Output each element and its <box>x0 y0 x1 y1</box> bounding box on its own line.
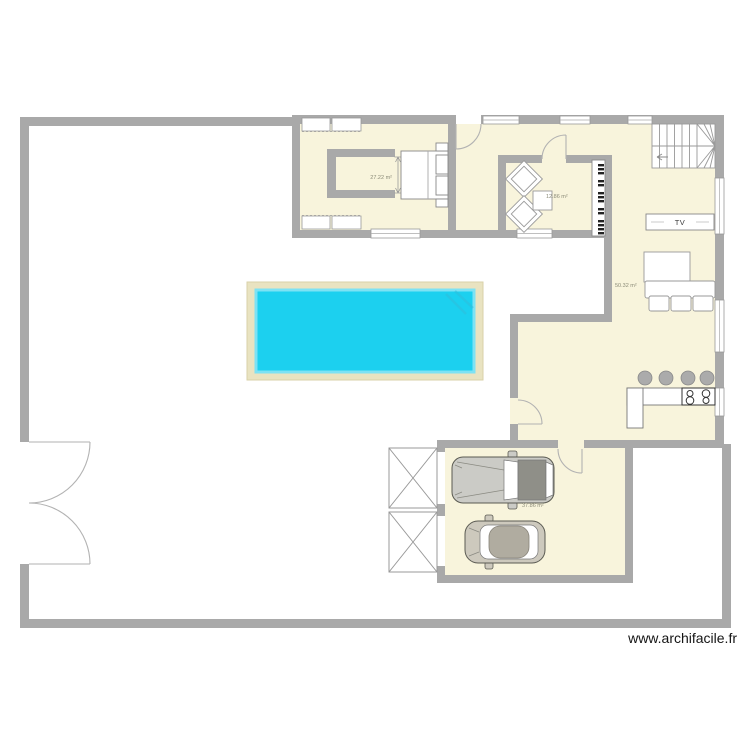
floor-kitchen-extension[interactable] <box>514 318 612 444</box>
window <box>302 216 330 229</box>
wall-garage-left-stub-top <box>437 440 445 452</box>
garage-door-panel <box>389 512 437 572</box>
window <box>302 118 330 131</box>
wall-kitchen-ext-top <box>510 314 612 322</box>
wall-bedroom-right <box>448 115 456 238</box>
wall-north-bottom <box>292 230 612 238</box>
car-rear-window <box>546 462 553 498</box>
tv-label: TV <box>675 218 686 227</box>
wall-salon-top-a <box>498 155 542 163</box>
wall-salon-left <box>498 155 506 238</box>
wall-bedroom-left <box>292 115 300 238</box>
area-label-living: 50.32 m² <box>615 283 637 289</box>
area-label-salon: 12.86 m² <box>546 194 568 200</box>
wall-garage-right <box>625 440 633 583</box>
burner <box>702 390 710 398</box>
bar-stool <box>700 371 714 385</box>
window <box>332 216 361 229</box>
garage-door-panel <box>389 448 437 508</box>
wall-kitchen-ext-left-a <box>510 314 518 398</box>
burner <box>687 391 693 397</box>
floor-plan: TV <box>0 0 750 750</box>
stove[interactable] <box>682 388 715 405</box>
area-label-garage: 37.86 m² <box>522 503 544 509</box>
wall-kitchen-bottom-a <box>510 440 558 448</box>
nightstand <box>436 143 448 151</box>
pillow <box>436 155 448 174</box>
car[interactable] <box>465 515 545 569</box>
sofa-cushion <box>671 296 691 311</box>
car-roof <box>518 460 546 500</box>
area-label-bedroom: 27.22 m² <box>370 175 392 181</box>
wall-kitchen-bottom-b <box>584 440 724 448</box>
car-windshield <box>504 460 518 500</box>
dining-table[interactable] <box>644 252 690 282</box>
floor-plan-canvas: TV <box>0 0 750 750</box>
staircase[interactable] <box>652 124 715 168</box>
wall-property-top <box>20 117 292 126</box>
burner <box>703 398 709 404</box>
sofa-cushion <box>649 296 669 311</box>
sofa-back <box>645 281 715 298</box>
nightstand <box>436 199 448 207</box>
wall-wing-left-upper <box>604 238 612 322</box>
wall-garage-bottom <box>437 575 633 583</box>
car[interactable] <box>452 451 554 509</box>
pillow <box>436 176 448 195</box>
watermark: www.archifacile.fr <box>627 630 737 646</box>
wall-garage-top <box>437 440 510 448</box>
gate-double-door <box>29 442 90 564</box>
window <box>332 118 361 131</box>
sofa[interactable] <box>645 281 715 311</box>
bar-stool <box>638 371 652 385</box>
wall-property-right <box>722 444 731 628</box>
pool-water <box>256 290 474 372</box>
wall-garage-left-stub-mid <box>437 504 445 516</box>
piano[interactable] <box>592 160 605 236</box>
sofa-cushion <box>693 296 713 311</box>
bar-stool <box>659 371 673 385</box>
tv-unit[interactable]: TV <box>646 214 714 230</box>
car-roof <box>489 526 529 558</box>
garage-doors[interactable] <box>389 448 437 572</box>
bar-stool <box>681 371 695 385</box>
wall-property-bottom <box>20 619 731 628</box>
pool[interactable] <box>247 282 483 380</box>
burner <box>686 397 694 405</box>
bed[interactable] <box>401 143 448 207</box>
